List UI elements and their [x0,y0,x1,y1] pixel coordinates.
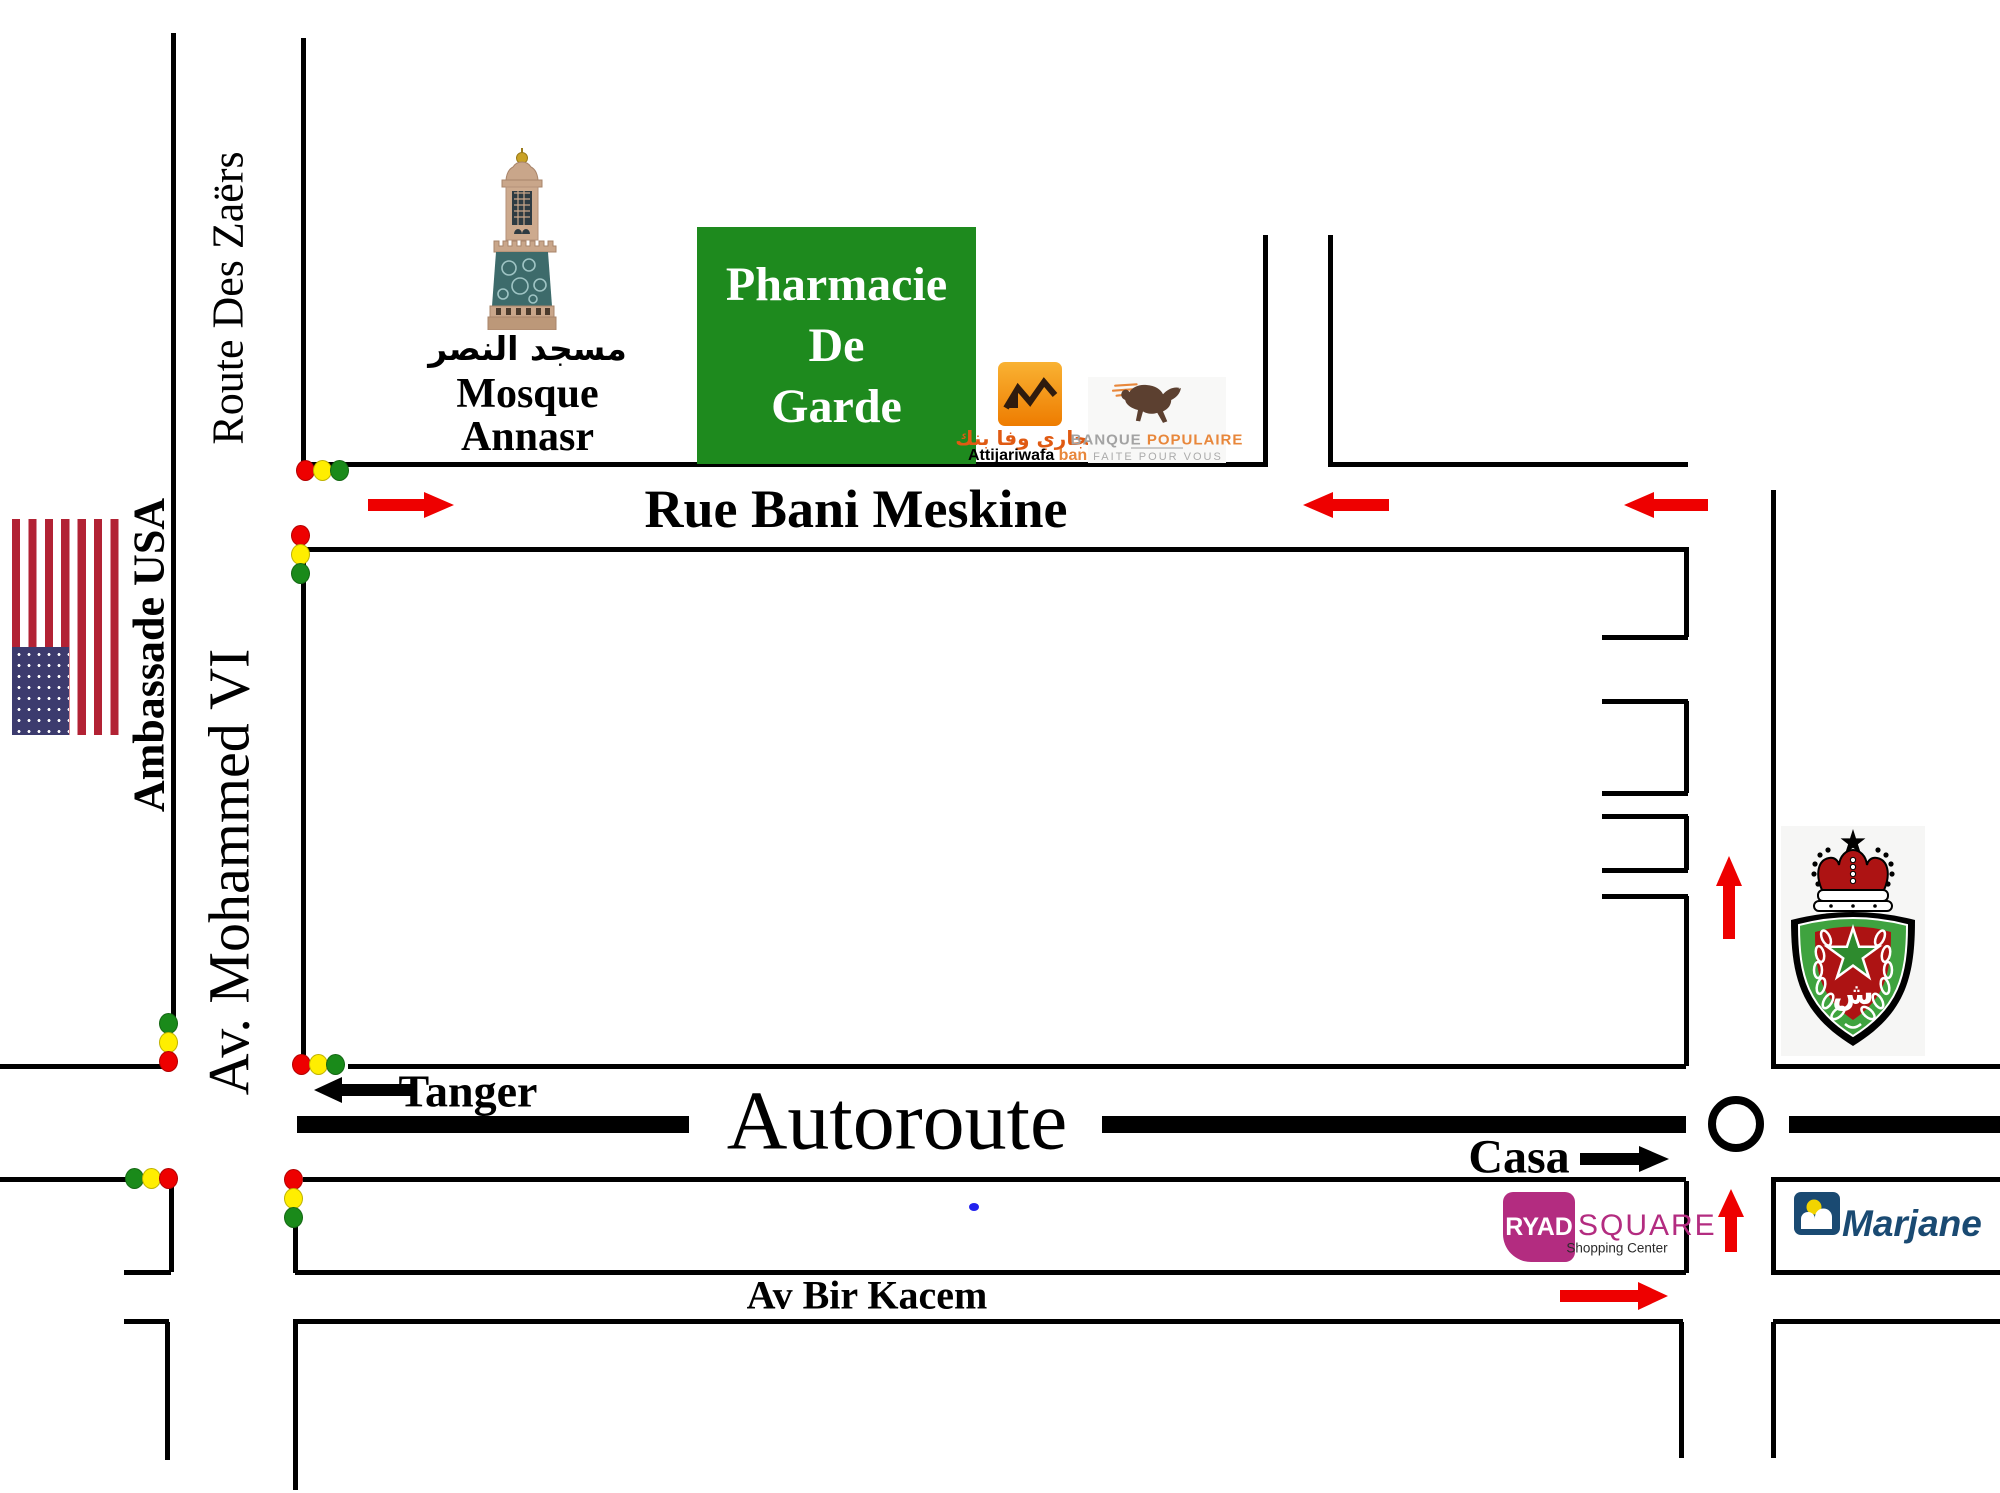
road-line [293,1319,1683,1324]
traffic-light [285,1170,302,1227]
autoroute-bar [297,1116,689,1133]
road-line [124,1319,169,1324]
green-light [326,1054,345,1075]
road-line [1771,1322,1776,1458]
yellow-light [159,1032,178,1053]
horse-icon [1112,380,1184,430]
side-street-tick [1602,894,1688,899]
road-line [165,1322,170,1460]
traffic-light [160,1014,177,1071]
police-crest-icon: ش [1781,826,1925,1056]
marjane-wordmark: Marjane [1842,1203,1982,1245]
mosque-label: مسجد النصر Mosque Annasr [420,326,635,459]
side-street-tick [1602,791,1688,796]
traffic-light [293,1055,344,1074]
street-label-ambassade-usa: Ambassade USA [124,498,175,812]
blue-dot [969,1203,979,1211]
road-line [1771,1181,1776,1273]
side-street-tick [1602,868,1688,873]
us-flag [12,519,119,735]
map-canvas: Route Des Zaërs Ambassade USA Av. Mohamm… [0,0,2000,1493]
bp-divider [1131,447,1183,449]
road-line [1331,462,1688,467]
street-label-av-bir-kacem: Av Bir Kacem [747,1272,988,1319]
road-line [1679,1322,1684,1458]
side-street-tick [1602,699,1688,704]
ryad-square-logo: RYAD [1503,1192,1575,1262]
pharmacie-line3: Garde [771,376,902,437]
us-flag-canton [12,647,69,735]
destination-label-tanger: Tanger [399,1065,538,1118]
ryad-name-rest: SQUARE [1578,1209,1717,1243]
ryad-name-box: RYAD [1505,1213,1573,1242]
bp-brand-orange: POPULAIRE [1147,432,1244,449]
roundabout-icon [1708,1096,1764,1152]
road-line [1263,235,1268,467]
attijariwafa-name: Attijariwafa [968,447,1054,464]
road-line [1684,896,1689,1066]
yellow-light [291,544,310,565]
autoroute-bar [1102,1116,1686,1133]
road-line [301,547,306,1055]
arrow-right-icon [1560,1282,1668,1310]
road-line [295,1270,1686,1275]
road-line [169,1182,174,1272]
green-light [284,1207,303,1228]
mosque-name-line2: Annasr [420,416,635,459]
attijariwafa-wordmark: Attijariwafa bank [968,447,1096,465]
road-line [1771,490,1776,1066]
traffic-light [292,526,309,583]
street-label-autoroute: Autoroute [727,1073,1068,1170]
destination-label-casa: Casa [1468,1130,1569,1185]
arrow-left-icon [311,1077,411,1103]
bank-zigzag-icon [998,362,1062,426]
street-label-av-mohammed-vi: Av. Mohammed VI [196,649,263,1096]
banque-populaire-wordmark: BANQUE POPULAIRE [1071,432,1244,449]
traffic-light [297,461,348,480]
mosque-name-arabic: مسجد النصر [420,326,635,372]
road-line [303,547,1688,552]
yellow-light [284,1188,303,1209]
pharmacie-de-garde-sign: Pharmacie De Garde [697,227,976,464]
pharmacie-line2: De [809,315,865,376]
mosque-name-line1: Mosque [420,372,635,416]
road-line [1771,1177,2000,1182]
red-light [159,1051,178,1072]
road-line [1771,1270,2000,1275]
arrow-left-icon [1300,492,1389,518]
traffic-light [126,1169,177,1188]
red-light [291,525,310,546]
green-light [330,460,349,481]
road-line [124,1270,171,1275]
arrow-up-icon [1716,853,1742,939]
arrow-right-icon [1580,1146,1669,1172]
road-line [301,38,306,464]
road-line [1773,1319,2000,1324]
road-line [348,1064,1686,1069]
road-line [0,1064,168,1069]
arrow-left-icon [1621,492,1708,518]
bp-brand-gray: BANQUE [1071,432,1142,449]
pharmacie-line1: Pharmacie [726,254,947,315]
arrow-up-icon [1718,1186,1744,1252]
bp-tagline: FAITE POUR VOUS [1093,451,1223,463]
road-line [1328,235,1333,467]
red-light [284,1169,303,1190]
road-line [1684,701,1689,793]
autoroute-bar [1789,1116,2000,1133]
street-label-route-des-zaers: Route Des Zaërs [203,151,254,444]
mosque-minaret-icon [463,148,581,330]
green-light [159,1013,178,1034]
road-line [1771,1064,2000,1069]
marjane-mark-icon [1794,1192,1840,1235]
road-line [0,1177,126,1182]
green-light [291,563,310,584]
street-label-rue-bani-meskine: Rue Bani Meskine [644,478,1067,540]
road-line [1684,816,1689,870]
road-line [1684,547,1689,637]
arrow-right-icon [368,492,454,518]
red-light [159,1168,178,1189]
side-street-tick [1602,635,1688,640]
road-line [293,1322,298,1490]
side-street-tick [1602,814,1688,819]
ryad-tagline: Shopping Center [1566,1241,1667,1256]
